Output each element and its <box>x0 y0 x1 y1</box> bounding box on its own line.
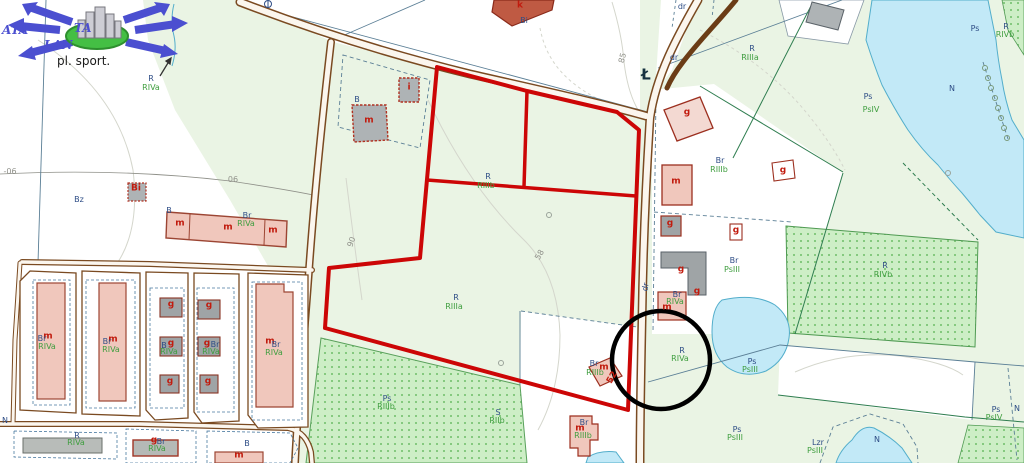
map-label: 52 <box>606 370 620 385</box>
map-caption: pl. sport. <box>57 54 110 68</box>
map-label: Ps <box>383 395 392 403</box>
map-label: Br <box>673 291 682 299</box>
map-label: R <box>882 262 888 270</box>
map-label: R <box>1003 23 1009 31</box>
map-label: B <box>166 207 172 215</box>
map-label: RIIIa <box>741 54 759 62</box>
map-label: Br <box>243 212 252 220</box>
map-label: m <box>599 364 608 373</box>
map-label: Ps <box>992 406 1001 414</box>
map-label: Br <box>730 257 739 265</box>
map-label: RIVa <box>102 346 120 354</box>
map-label: dr <box>641 282 650 292</box>
map-label: g <box>780 167 786 176</box>
map-label: RIVa <box>67 439 85 447</box>
map-label: g <box>667 220 673 229</box>
map-label: N <box>1014 405 1020 413</box>
map-label: g <box>694 288 700 297</box>
map-label: R <box>485 173 491 181</box>
map-label: m <box>364 117 373 126</box>
map-label: 58 <box>534 249 546 262</box>
map-label: RIVa <box>265 349 283 357</box>
map-label: RIVa <box>666 298 684 306</box>
map-label: R <box>679 347 685 355</box>
map-label: R <box>148 75 154 83</box>
map-label: RIVa <box>671 355 689 363</box>
map-label: m <box>265 338 274 347</box>
map-label: RIVa <box>148 445 166 453</box>
map-label: RIIIa <box>445 303 463 311</box>
map-label: g <box>206 302 212 311</box>
map-label: RIVa <box>142 84 160 92</box>
map-label: RIIIb <box>477 182 495 190</box>
map-label: PsIII <box>724 266 740 274</box>
map-label: RIVb <box>874 271 892 279</box>
map-label: g <box>168 340 174 349</box>
map-label: RIIIb <box>574 432 592 440</box>
map-label: R <box>749 45 755 53</box>
map-label: RIVb <box>996 31 1014 39</box>
map-label: m <box>234 452 243 461</box>
map-label: Bi <box>131 185 141 194</box>
map-label: Br <box>103 338 112 346</box>
map-label: PsIV <box>863 106 880 114</box>
map-label: Ł <box>641 68 651 83</box>
map-label: B <box>354 96 360 104</box>
map-label: R <box>453 294 459 302</box>
map-label: m <box>175 220 184 229</box>
map-label: m <box>268 227 277 236</box>
map-label: RIVa <box>202 348 220 356</box>
map-label: g <box>678 266 684 275</box>
map-label: Br <box>590 360 599 368</box>
map-label: m <box>662 304 671 313</box>
map-label: -06 <box>3 168 16 176</box>
logo-text-lan: LAN <box>44 38 73 52</box>
map-label: Bz <box>74 196 84 204</box>
map-label: g <box>168 301 174 310</box>
map-label: Br <box>38 335 47 343</box>
map-label: RIIIb <box>710 166 728 174</box>
map-label: m <box>575 425 584 434</box>
map-label: g <box>733 227 739 236</box>
map-labels-layer: ATA TA LAN pl. sport. RRIVa-0606BzBiBmmm… <box>0 0 1024 463</box>
map-label: dr <box>678 3 686 11</box>
map-label: RIIIb <box>586 369 604 377</box>
map-label: B <box>161 342 167 350</box>
cadastral-map: ATA TA LAN pl. sport. RRIVa-0606BzBiBmmm… <box>0 0 1024 463</box>
map-label: Lzr <box>812 439 824 447</box>
map-label: g <box>684 109 690 118</box>
map-label: Ps <box>971 25 980 33</box>
map-label: m <box>43 333 52 342</box>
map-label: m <box>223 224 232 233</box>
map-label: N <box>949 85 955 93</box>
map-label: RIVa <box>38 343 56 351</box>
map-label: RIIb <box>489 417 504 425</box>
map-label: m <box>671 178 680 187</box>
map-label: Br <box>716 157 725 165</box>
map-label: k <box>517 2 523 11</box>
map-label: 90 <box>346 236 357 248</box>
map-label: g <box>167 378 173 387</box>
map-label: Ps <box>748 358 757 366</box>
map-label: PsIII <box>727 434 743 442</box>
map-label: m <box>108 336 117 345</box>
map-label: S <box>495 409 500 417</box>
map-label: RIVa <box>160 348 178 356</box>
map-label: PsIII <box>742 366 758 374</box>
map-label: Br <box>157 438 166 446</box>
map-label: g <box>204 340 210 349</box>
map-label: B <box>244 440 250 448</box>
map-label: PsIII <box>807 447 823 455</box>
map-label: RIVa <box>237 220 255 228</box>
map-label: g <box>151 437 157 446</box>
map-label: PsIV <box>986 414 1003 422</box>
map-label: Bi <box>520 17 528 25</box>
map-label: RIIIb <box>377 403 395 411</box>
map-label: N <box>2 417 8 425</box>
map-label: Ps <box>733 426 742 434</box>
logo-text-ta: TA <box>74 21 92 35</box>
map-label: 85 <box>618 52 628 64</box>
map-label: Ps <box>864 93 873 101</box>
map-label: N <box>874 436 880 444</box>
map-label: i <box>407 84 410 93</box>
map-label: Br <box>211 341 220 349</box>
map-label: dr <box>670 54 678 62</box>
logo-text-ata: ATA <box>2 23 28 37</box>
map-label: g <box>205 378 211 387</box>
map-label: Br <box>272 341 281 349</box>
map-label: Br <box>580 419 589 427</box>
map-label: R <box>74 432 80 440</box>
map-label: 06 <box>228 176 238 184</box>
